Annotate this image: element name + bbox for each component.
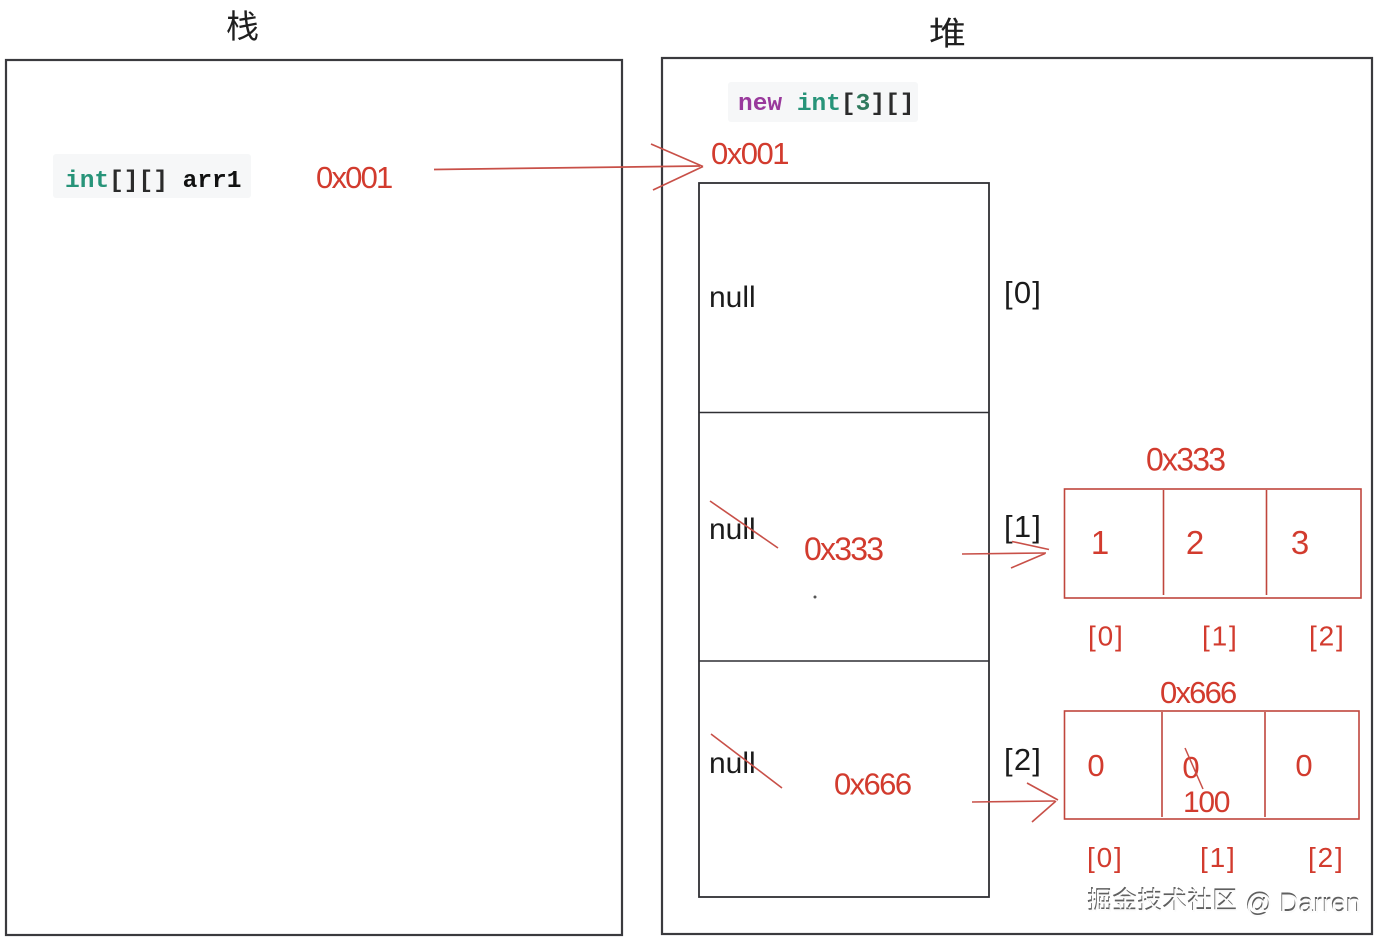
svg-text:[1]: [1] [1004, 509, 1042, 544]
svg-text:0x333: 0x333 [1146, 442, 1225, 478]
svg-text:0x333: 0x333 [804, 531, 883, 567]
svg-text:0: 0 [1182, 750, 1199, 785]
svg-text:[0]: [0] [1088, 621, 1125, 652]
svg-text:null: null [709, 513, 756, 546]
svg-text:0x666: 0x666 [834, 767, 911, 802]
svg-text:0: 0 [1087, 748, 1104, 783]
svg-text:0x666: 0x666 [1160, 675, 1236, 710]
svg-text:int[][] arr1: int[][] arr1 [65, 168, 241, 195]
svg-text:100: 100 [1183, 786, 1230, 819]
svg-text:[0]: [0] [1004, 275, 1042, 310]
svg-text:[2]: [2] [1004, 742, 1042, 777]
svg-text:new int[3][]: new int[3][] [738, 91, 914, 118]
svg-text:@ Darren: @ Darren [1246, 889, 1361, 919]
svg-text:null: null [709, 281, 756, 314]
svg-text:[1]: [1] [1202, 621, 1239, 652]
svg-text:[2]: [2] [1309, 621, 1346, 652]
svg-text:3: 3 [1291, 524, 1309, 561]
svg-text:[1]: [1] [1200, 842, 1237, 873]
svg-text:[2]: [2] [1308, 842, 1345, 873]
svg-text:0: 0 [1295, 748, 1312, 783]
svg-text:0x001: 0x001 [711, 136, 788, 171]
svg-text:0x001: 0x001 [316, 160, 392, 195]
svg-text:2: 2 [1186, 524, 1204, 561]
svg-text:[0]: [0] [1087, 842, 1124, 873]
svg-text:1: 1 [1091, 524, 1109, 561]
